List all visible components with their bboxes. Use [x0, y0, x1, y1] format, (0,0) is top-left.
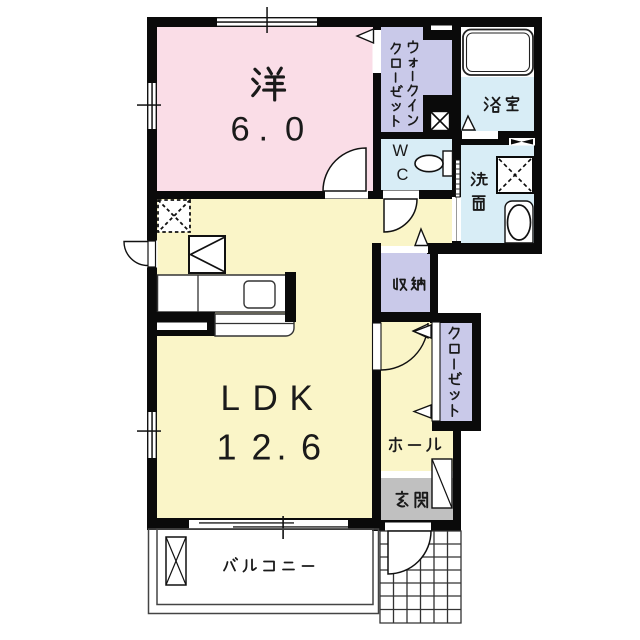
svg-text:6: 6: [231, 111, 250, 149]
svg-text:0: 0: [285, 111, 304, 149]
svg-text:2: 2: [252, 427, 272, 468]
svg-text:1: 1: [217, 427, 237, 468]
svg-text:K: K: [290, 379, 313, 418]
svg-text:W: W: [393, 142, 409, 160]
svg-text:D: D: [253, 379, 278, 418]
svg-text:L: L: [221, 379, 240, 418]
svg-text:C: C: [397, 166, 409, 184]
svg-text:.: .: [277, 427, 287, 468]
svg-text:.: .: [259, 111, 269, 149]
svg-text:6: 6: [301, 427, 321, 468]
